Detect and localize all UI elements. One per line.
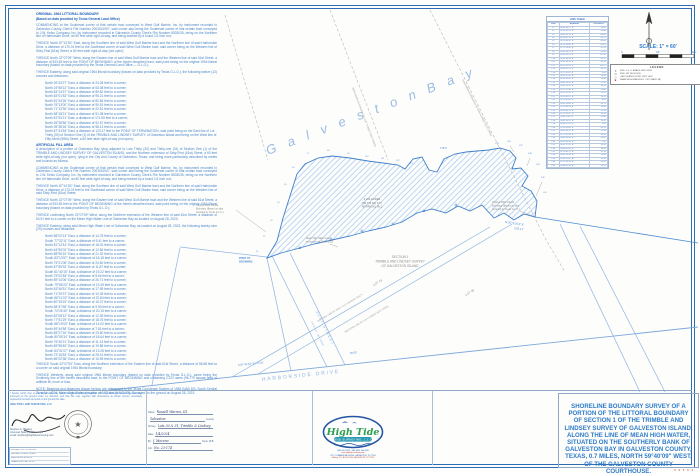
certification-block: I hereby certify that on the below date,…: [10, 393, 142, 406]
form-label: Date:: [148, 433, 154, 436]
form-row: Date: 1/4/2024: [148, 432, 214, 437]
ext-59th-label: NORTHERN EXTENSION OF 59TH STREET (NOT O…: [461, 79, 492, 137]
table-row: L41 N 86°02'38" E 15.59': [548, 164, 608, 167]
high-tide-logo: High Tide LAND SURVEYING, L.L.C.: [322, 415, 384, 449]
certification-text: I hereby certify that on the below date,…: [10, 393, 142, 401]
revision-row: DRAWN J.M. CHK. S.C.B.: [11, 461, 69, 464]
lot30-label: LOT 30: [464, 288, 475, 297]
divider-form-logo: [312, 391, 313, 465]
form-value: J. Moreno: [153, 439, 201, 444]
svg-text:2.222 ACRES: 2.222 ACRES: [364, 197, 381, 201]
sheet-code: 9 9 6 6 3: [674, 468, 694, 472]
harborside-drive-label: HARBORSIDE DRIVE: [262, 369, 341, 383]
surveyor-name-block: Stephen C. BlaskeyLicensed State Land Su…: [10, 428, 80, 437]
scale-bar: [622, 55, 694, 58]
svg-text:TRIMBLE AND LINDSEY SURVEY: TRIMBLE AND LINDSEY SURVEY: [375, 259, 426, 263]
svg-text:(96,779 SQ. FT.): (96,779 SQ. FT.): [362, 201, 382, 205]
form-row: Galveston County: [148, 417, 214, 422]
job-info-form: Name: Russell Warren, III Galveston Coun…: [148, 410, 214, 453]
svg-text:L4: L4: [277, 202, 280, 204]
svg-text:L11: L11: [381, 158, 385, 160]
legal-paragraph: COMMENCING at the Southeast corner of th…: [36, 167, 217, 182]
svg-text:L41: L41: [543, 192, 547, 194]
form-label: Survey:: [148, 425, 156, 428]
bottom-divider: [8, 390, 692, 391]
svg-text:L2: L2: [263, 236, 266, 238]
svg-text:L40: L40: [541, 177, 545, 179]
divider-logo-blank: [432, 391, 433, 465]
divider-cert-form: [146, 391, 147, 465]
form-label: By:: [148, 440, 151, 443]
company-address: (409) 740-1919 · FAX (409) 740-1920www.h…: [318, 450, 388, 460]
svg-text:provided by Texas G.L.O.): provided by Texas G.L.O.): [492, 208, 520, 211]
legal-paragraphs-3: THENCE South 22°07'09" East, along the N…: [36, 363, 217, 385]
svg-text:L9: L9: [347, 153, 350, 155]
svg-text:L5: L5: [284, 184, 287, 186]
revision-box: REVISED 01-17-24 NOTESREVISED 12-08-23 C…: [9, 447, 71, 465]
legal-paragraph: A description of a portion of Galveston …: [36, 148, 217, 163]
svg-text:120': 120': [692, 50, 697, 54]
legal-paragraphs-2: A description of a portion of Galveston …: [36, 148, 217, 232]
property-lines: [152, 224, 665, 392]
svg-text:Boundary (Based on data: Boundary (Based on data: [492, 205, 520, 208]
legend-item: ■ MEAN HIGH WATER EL. 0.92' (NAVD 88): [613, 79, 700, 82]
line-id: L41: [548, 164, 560, 167]
svg-text:Original 1964 Littoral: Original 1964 Littoral: [492, 201, 515, 204]
form-suffix: Crew: W.B.: [202, 440, 214, 443]
svg-text:L36: L36: [507, 141, 511, 143]
legend-title: LEGEND: [613, 66, 700, 69]
legal-courses-2: North 88°02'13" East, a distance of 14.7…: [36, 235, 217, 362]
svg-text:L35: L35: [495, 143, 499, 145]
road-distance-label: 50.00': [350, 350, 358, 355]
title-block: SHORELINE BOUNDARY SURVEY OF A PORTION O…: [558, 393, 699, 468]
form-row: Survey: Lots 30 & 31, Trimble & Lindsey: [148, 424, 214, 429]
svg-text:60': 60': [656, 50, 660, 54]
svg-text:ARTIFICIAL FILL: ARTIFICIAL FILL: [362, 205, 383, 209]
form-row: By: J. Moreno Crew: W.B.: [148, 439, 214, 444]
svg-text:BEGINNING: BEGINNING: [239, 260, 253, 263]
legal-paragraph: THENCE North 87°41'53" East, along the S…: [36, 42, 217, 53]
form-suffix: County: [206, 418, 214, 421]
legend-symbol-icon: ■: [613, 79, 618, 82]
mhw-note: Mean High Water Line as located on 08-28…: [306, 237, 334, 244]
svg-text:L10: L10: [365, 156, 369, 158]
scale-label: SCALE: 1" = 60': [639, 44, 677, 50]
tip-distance: 123.17': [514, 226, 525, 232]
legal-paragraphs-1: COMMENCING at the Southeast corner of th…: [36, 24, 217, 79]
svg-text:as located on 08-28-2023: as located on 08-28-2023: [306, 241, 334, 244]
legal-paragraph: THENCE Easterly, along said original 196…: [36, 71, 217, 78]
svg-text:SECTION 1: SECTION 1: [392, 255, 409, 259]
legal-paragraph: THENCE South 22°07'09" East, along the N…: [36, 363, 217, 370]
svg-text:Mean High Water Line: Mean High Water Line: [306, 237, 330, 240]
legal-paragraph: THENCE Easterly, along said Mean High Wa…: [36, 225, 217, 232]
svg-text:L12: L12: [396, 160, 400, 162]
legal-subheading-1: (Based on data provided by Texas General…: [36, 18, 217, 22]
svg-text:L37: L37: [519, 145, 523, 147]
bay-label: G a l v e s t o n B a y: [264, 63, 479, 157]
logo-banner: LAND SURVEYING, L.L.C.: [332, 437, 373, 441]
line-table-body: L1 N 06°43'27" E 24.28' L2 N 19°56'13" E…: [548, 26, 608, 168]
legal-paragraph: THENCE Westerly, along said original 196…: [36, 374, 217, 385]
form-row: Name: Russell Warren, III: [148, 410, 214, 415]
svg-text:L3: L3: [270, 220, 273, 222]
form-value: 1/4/2024: [155, 432, 212, 437]
legal-courses-1: North 06°43'27" East, a distance of 24.2…: [36, 82, 217, 141]
logo-name: High Tide: [326, 427, 380, 438]
legal-description-column: ORIGINAL 1964 LITTORAL BOUNDARY (Based o…: [36, 13, 217, 399]
legal-paragraph: COMMENCING at the Southeast corner of th…: [36, 24, 217, 39]
company-logo-block: High Tide LAND SURVEYING, L.L.C. (409) 7…: [318, 415, 388, 460]
legal-paragraph: THENCE continuing North 22°07'09" West, …: [36, 214, 217, 221]
svg-text:L39: L39: [536, 164, 540, 166]
form-label: Job:: [148, 447, 153, 450]
svg-text:0: 0: [621, 50, 623, 54]
form-value: Galveston: [150, 417, 205, 422]
pob-label: POINT OF BEGINNING: [239, 257, 253, 263]
littoral-line-east: [535, 217, 698, 243]
form-value: Russell Warren, III: [157, 410, 213, 415]
scale-tick-labels: 0 60' 120': [621, 50, 697, 54]
legal-paragraph: THENCE North 22°07'09" West, along the E…: [36, 57, 217, 68]
svg-text:OF GALVESTON ISLAND: OF GALVESTON ISLAND: [382, 264, 420, 268]
line-bearing: N 86°02'38" E: [559, 164, 590, 167]
line-distance: 15.59': [590, 164, 608, 167]
company-address-line: Mailing: P.O. BOX 16743, GALVESTON, TX 7…: [318, 457, 388, 459]
legal-paragraph: THENCE North 87°41'53" East, along the S…: [36, 185, 217, 196]
acreage-label: 2.222 ACRES (96,779 SQ. FT.) ARTIFICIAL …: [362, 197, 383, 209]
top-distance-label: 178.5': [440, 146, 447, 150]
svg-text:L1: L1: [256, 251, 259, 253]
form-value: No. 23-174: [154, 446, 212, 451]
section-label: SECTION 1 TRIMBLE AND LINDSEY SURVEY OF …: [375, 255, 426, 268]
survey-sheet: G a l v e s t o n B a y NORTHERN EXTENSI…: [0, 0, 700, 473]
legal-paragraph: THENCE North 22°07'09" West, along the E…: [36, 199, 217, 210]
svg-text:L7: L7: [307, 153, 310, 155]
form-row: Job: No. 23-174: [148, 446, 214, 451]
svg-text:L8: L8: [327, 150, 330, 152]
legend-box: LEGEND ✶ FND. G.L.O. BRASS DISC MON. ⊙ F…: [610, 64, 700, 85]
form-value: Lots 30 & 31, Trimble & Lindsey: [158, 424, 213, 429]
svg-text:L6: L6: [292, 167, 295, 169]
form-label: Name:: [148, 411, 155, 414]
legend-item-label: MEAN HIGH WATER EL. 0.92' (NAVD 88): [620, 79, 661, 82]
line-table: LINE TABLE LINE BEARING DISTANCE L1 N 06…: [546, 16, 609, 169]
lot31-label: LOT 31: [372, 278, 383, 287]
survey-title: SHORELINE BOUNDARY SURVEY OF A PORTION O…: [564, 403, 693, 473]
course-line: North 87°41'53" East, a distance of 123.…: [36, 130, 217, 141]
surveyor-name-line: email: stephen@hightidesurveying.com: [10, 434, 80, 437]
svg-text:L38: L38: [528, 153, 532, 155]
